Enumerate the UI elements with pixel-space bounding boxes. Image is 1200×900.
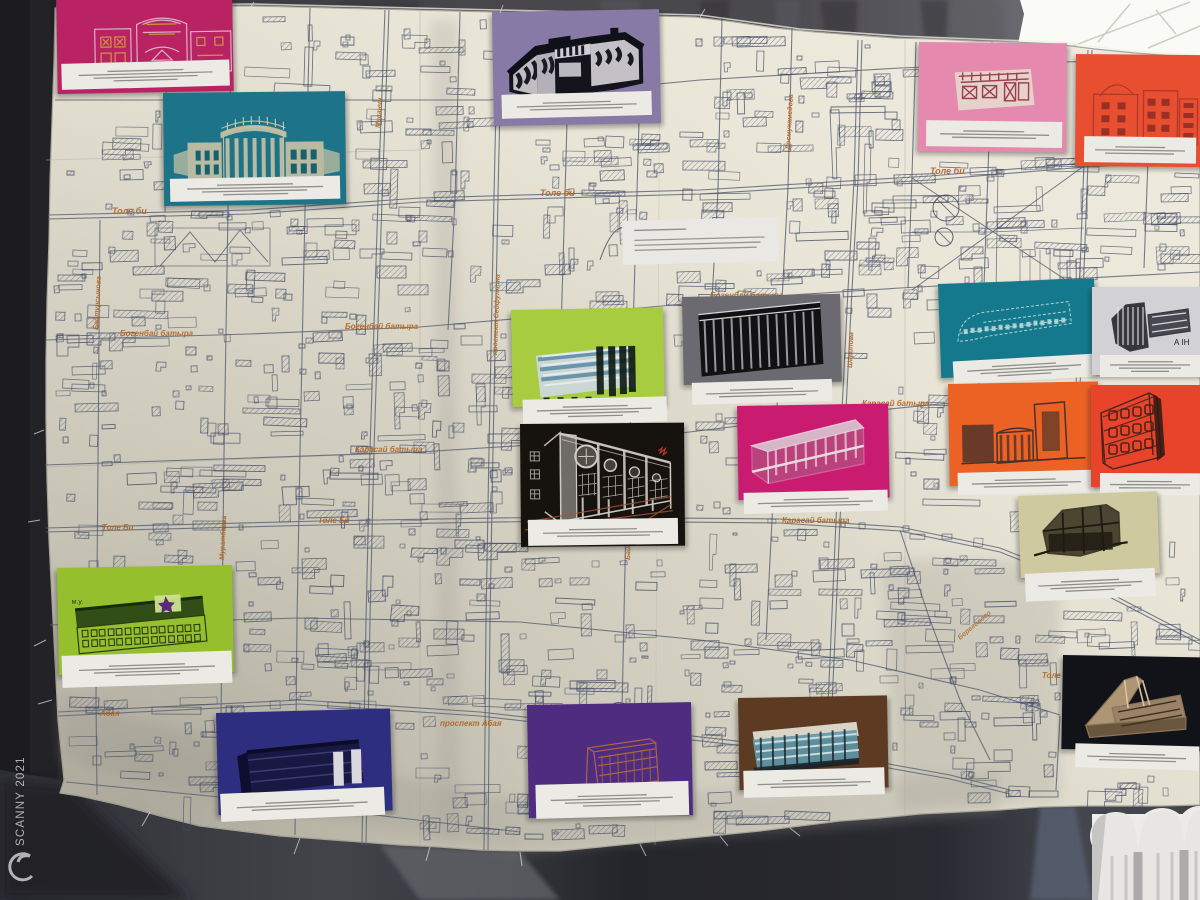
svg-text:Толе би: Толе би <box>112 206 147 216</box>
svg-text:Карасай батыра: Карасай батыра <box>355 445 423 454</box>
svg-text:Карасай батыра: Карасай батыра <box>782 516 850 525</box>
svg-text:А ІН: А ІН <box>1174 338 1190 347</box>
svg-text:Толе би: Толе би <box>540 188 575 198</box>
svg-text:проспект Абая: проспект Абая <box>440 719 502 728</box>
svg-text:Абая: Абая <box>99 709 120 718</box>
svg-text:Богенбай батыра: Богенбай батыра <box>120 329 194 338</box>
svg-text:Шарипова: Шарипова <box>847 332 855 368</box>
svg-text:Богенбай батыра: Богенбай батыра <box>345 322 419 331</box>
svg-text:м.у.: м.у. <box>72 599 84 606</box>
svg-text:Толе Би: Толе Би <box>102 523 134 532</box>
svg-text:SCANNY 2021: SCANNY 2021 <box>15 756 27 846</box>
svg-text:Толе Би: Толе Би <box>318 516 350 525</box>
svg-text:Толе би: Толе би <box>930 166 965 176</box>
